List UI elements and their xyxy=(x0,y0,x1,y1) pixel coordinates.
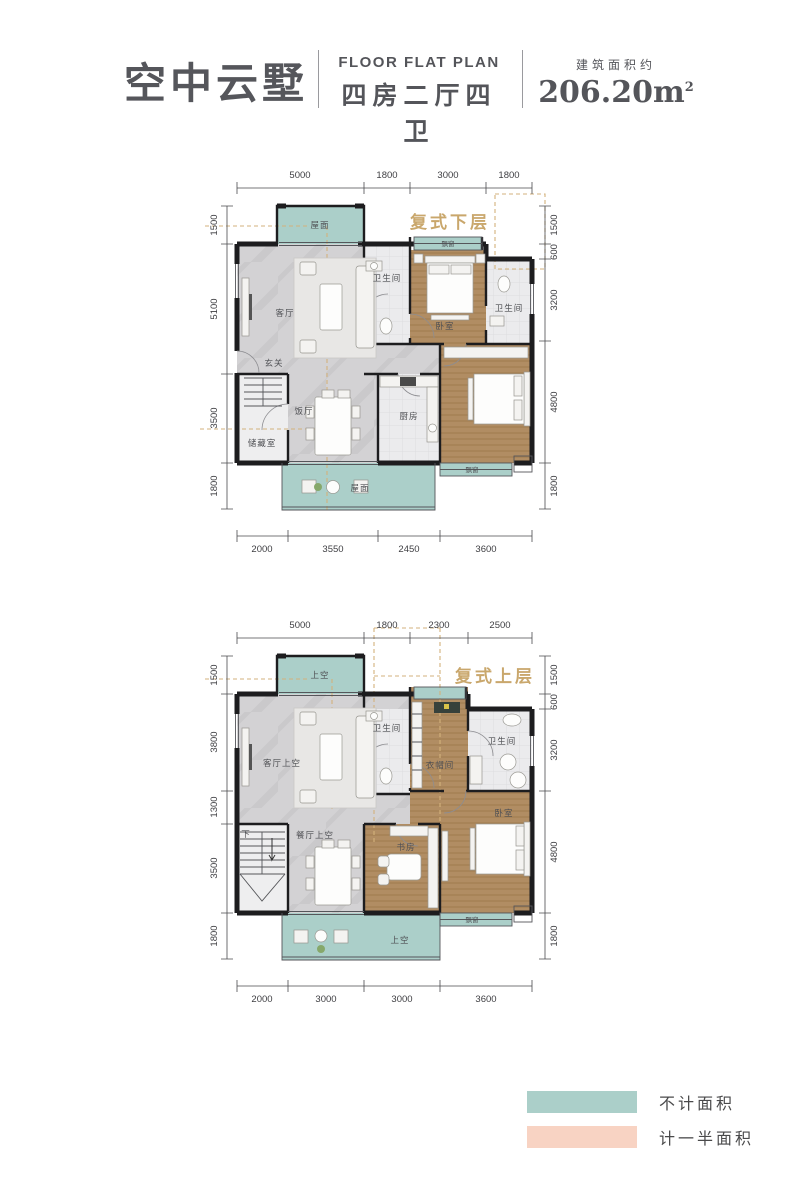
svg-text:600: 600 xyxy=(549,694,560,710)
svg-text:3600: 3600 xyxy=(475,994,496,1005)
room-label-void: 上空 xyxy=(390,935,409,945)
plan-name-upper: 复式上层 xyxy=(454,666,535,687)
room-label-bath: 卫生间 xyxy=(495,303,524,313)
floorplan-flyer: 空中云墅 FLOOR FLAT PLAN 四房二厅四卫 建筑面积约 206.20… xyxy=(0,0,800,1200)
floor-plan-upper-level: 5000 1800 2300 2500 1500 3800 1300 3500 … xyxy=(182,616,612,1011)
room-label-bedroom: 卧室 xyxy=(435,321,454,331)
room-label-bath: 卫生间 xyxy=(373,273,402,283)
svg-text:4800: 4800 xyxy=(549,391,560,412)
room-label-foyer: 玄关 xyxy=(264,358,283,368)
patio-chair-icon xyxy=(302,480,316,493)
svg-text:1800: 1800 xyxy=(376,620,397,631)
room-label-living: 客厅 xyxy=(275,308,294,318)
header-subtitle: FLOOR FLAT PLAN 四房二厅四卫 xyxy=(328,54,510,148)
sofa-icon xyxy=(356,716,374,798)
legend-label: 不计面积 xyxy=(659,1090,735,1114)
svg-text:3500: 3500 xyxy=(209,857,220,878)
legend-swatch-teal xyxy=(527,1091,637,1113)
svg-text:2500: 2500 xyxy=(489,620,510,631)
bookshelf-icon xyxy=(428,828,438,908)
plant-icon xyxy=(314,483,322,491)
svg-text:2300: 2300 xyxy=(428,620,449,631)
svg-text:2450: 2450 xyxy=(398,544,419,555)
room-label-roof: 屋面 xyxy=(310,220,329,230)
room-label-baywindow: 飘窗 xyxy=(442,239,455,248)
svg-text:5100: 5100 xyxy=(209,298,220,319)
room-label-dining: 饭厅 xyxy=(294,406,313,416)
svg-text:600: 600 xyxy=(549,244,560,260)
svg-text:3000: 3000 xyxy=(315,994,336,1005)
patio-table-icon xyxy=(315,930,327,942)
svg-text:1500: 1500 xyxy=(209,664,220,685)
room-label-storage: 储藏室 xyxy=(248,438,277,448)
page-title: 空中云墅 xyxy=(124,50,308,111)
room-label-cloakroom: 衣帽间 xyxy=(426,760,455,770)
desk-icon xyxy=(387,854,421,880)
svg-text:5000: 5000 xyxy=(289,170,310,181)
plant-icon xyxy=(317,945,325,953)
legend-item-half-area: 计一半面积 xyxy=(527,1125,754,1149)
room-label-baywindow: 飘窗 xyxy=(466,465,479,474)
svg-text:3500: 3500 xyxy=(209,407,220,428)
stove-icon xyxy=(400,377,416,386)
svg-text:5000: 5000 xyxy=(289,620,310,631)
bed-icon xyxy=(524,822,530,876)
tv-cabinet-icon xyxy=(242,728,249,786)
patio-chair-icon xyxy=(294,930,308,943)
room-label-bath: 卫生间 xyxy=(488,736,517,746)
header-divider xyxy=(522,50,523,108)
toilet-icon xyxy=(380,768,392,784)
legend: 不计面积 计一半面积 xyxy=(527,1090,754,1160)
room-label-roof: 屋面 xyxy=(350,483,369,493)
dining-table-icon xyxy=(315,397,351,455)
header-area: 建筑面积约 206.20m2 xyxy=(533,56,699,110)
svg-text:1500: 1500 xyxy=(209,214,220,235)
svg-text:2000: 2000 xyxy=(251,544,272,555)
room-label-study: 书房 xyxy=(396,842,415,852)
svg-text:1500: 1500 xyxy=(549,214,560,235)
room-label-void: 上空 xyxy=(310,670,329,680)
subtitle-english: FLOOR FLAT PLAN xyxy=(328,54,510,71)
stairs-down-label: 下 xyxy=(241,829,251,839)
area-label: 建筑面积约 xyxy=(533,56,699,73)
svg-text:3800: 3800 xyxy=(209,731,220,752)
plan-name-lower: 复式下层 xyxy=(409,212,490,233)
svg-text:1800: 1800 xyxy=(498,170,519,181)
svg-text:3200: 3200 xyxy=(549,739,560,760)
subtitle-rooms: 四房二厅四卫 xyxy=(328,76,510,148)
svg-text:4800: 4800 xyxy=(549,841,560,862)
sofa-icon xyxy=(356,266,374,348)
room-label-baywindow: 飘窗 xyxy=(466,915,479,924)
svg-text:3200: 3200 xyxy=(549,289,560,310)
patio-table-icon xyxy=(327,481,340,494)
wardrobe-icon xyxy=(444,347,528,358)
tv-cabinet-icon xyxy=(242,278,249,336)
patio-chair-icon xyxy=(334,930,348,943)
room-label-dining-void: 餐厅上空 xyxy=(296,830,334,840)
toilet-icon xyxy=(380,318,392,334)
legend-swatch-salmon xyxy=(527,1126,637,1148)
toilet-icon xyxy=(498,276,510,292)
dining-table-icon xyxy=(315,847,351,905)
room-label-bath: 卫生间 xyxy=(373,723,402,733)
coffee-table-icon xyxy=(320,734,342,780)
bed-icon xyxy=(425,256,475,263)
svg-text:1800: 1800 xyxy=(549,925,560,946)
svg-text:1800: 1800 xyxy=(549,475,560,496)
floor-plan-lower-level: 5000 1800 3000 1800 1500 5100 3500 1800 … xyxy=(182,166,612,561)
bathtub-icon xyxy=(510,772,526,788)
svg-text:1800: 1800 xyxy=(376,170,397,181)
wardrobe-icon xyxy=(412,702,422,788)
toilet-icon xyxy=(503,714,521,726)
bed-icon xyxy=(524,372,530,426)
legend-item-excluded-area: 不计面积 xyxy=(527,1090,754,1114)
svg-text:3550: 3550 xyxy=(322,544,343,555)
svg-text:2000: 2000 xyxy=(251,994,272,1005)
svg-text:1300: 1300 xyxy=(209,796,220,817)
svg-text:1500: 1500 xyxy=(549,664,560,685)
area-value: 206.20m2 xyxy=(533,75,699,110)
room-label-bedroom: 卧室 xyxy=(494,808,513,818)
header-divider xyxy=(318,50,319,108)
svg-text:3000: 3000 xyxy=(391,994,412,1005)
svg-text:1800: 1800 xyxy=(209,925,220,946)
legend-label: 计一半面积 xyxy=(659,1125,754,1149)
tv-cabinet-icon xyxy=(442,831,448,881)
svg-text:3600: 3600 xyxy=(475,544,496,555)
svg-text:3000: 3000 xyxy=(437,170,458,181)
room-label-living-void: 客厅上空 xyxy=(263,758,301,768)
basin-icon xyxy=(500,754,516,770)
room-label-kitchen: 厨房 xyxy=(399,411,418,421)
svg-text:1800: 1800 xyxy=(209,475,220,496)
sink-icon xyxy=(429,424,437,432)
coffee-table-icon xyxy=(320,284,342,330)
